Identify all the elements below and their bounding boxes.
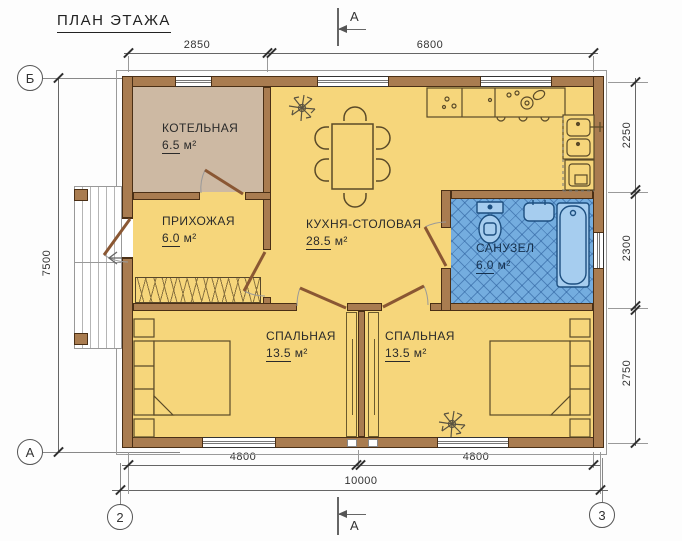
- chair: [344, 193, 366, 207]
- sink-basin: [567, 139, 590, 156]
- toilet-bowl: [479, 215, 501, 243]
- chair: [315, 127, 329, 149]
- room-area: 6.5 м²: [162, 137, 238, 154]
- chair: [315, 159, 329, 181]
- axis-marker-a: А: [17, 439, 43, 465]
- axis-marker-3: 3: [589, 502, 615, 528]
- nightstand: [570, 419, 590, 437]
- floor-plan-canvas: ПЛАН ЭТАЖА А А Б А 2 3 285: [0, 0, 682, 541]
- page-title: ПЛАН ЭТАЖА: [57, 12, 171, 33]
- door-leaf-hall: [244, 252, 265, 291]
- oven-door: [575, 175, 587, 184]
- room-name: СПАЛЬНАЯ: [385, 328, 455, 345]
- burner-icon: [521, 97, 533, 109]
- room-area: 6.0 м²: [162, 230, 235, 247]
- plant-icon: [439, 411, 465, 437]
- furniture-layer: [0, 0, 682, 541]
- chair: [376, 127, 390, 149]
- nightstand: [134, 319, 154, 337]
- stove: [565, 160, 594, 190]
- nightstand: [570, 319, 590, 337]
- room-name: САНУЗЕЛ: [476, 240, 534, 257]
- bed: [154, 341, 230, 415]
- room-label-hall: ПРИХОЖАЯ 6.0 м²: [162, 213, 235, 248]
- chair: [344, 107, 366, 121]
- chair: [376, 159, 390, 181]
- nightstand: [134, 419, 154, 437]
- room-area: 13.5 м²: [385, 345, 455, 362]
- sink-basin: [567, 119, 590, 136]
- section-arrow-icon: [338, 510, 347, 518]
- door-leaf-boiler: [205, 170, 243, 194]
- door-leaf-bedroom-2: [383, 286, 424, 307]
- dish-icon: [532, 89, 546, 102]
- room-label-bedroom-2: СПАЛЬНАЯ 13.5 м²: [385, 328, 455, 363]
- bed-2: [490, 319, 590, 437]
- entrance-arrow-icon: [109, 252, 122, 264]
- kitchen-sink: [563, 115, 603, 159]
- section-arrow-icon: [338, 25, 347, 33]
- room-label-boiler: КОТЕЛЬНАЯ 6.5 м²: [162, 120, 238, 155]
- bathroom-sink: [524, 203, 554, 221]
- bed-1: [134, 319, 230, 437]
- room-area: 13.5 м²: [266, 345, 336, 362]
- section-label-bottom: А: [350, 518, 359, 533]
- dining-table: [332, 124, 373, 189]
- door-leaf-bedroom-1: [300, 288, 346, 308]
- room-name: СПАЛЬНАЯ: [266, 328, 336, 345]
- room-area: 28.5 м²: [306, 233, 421, 250]
- axis-marker-2: 2: [107, 504, 133, 530]
- section-label-top: А: [350, 9, 359, 24]
- room-name: КОТЕЛЬНАЯ: [162, 120, 238, 137]
- plant-icon: [289, 95, 315, 121]
- room-label-kitchen: КУХНЯ-СТОЛОВАЯ 28.5 м²: [306, 216, 421, 251]
- headboard-shelf: [134, 341, 154, 415]
- room-label-bathroom: САНУЗЕЛ 6.0 м²: [476, 240, 534, 275]
- axis-marker-b: Б: [17, 65, 43, 91]
- kitchen-counter: [427, 88, 565, 121]
- dining-table-set: [315, 107, 390, 207]
- headboard-shelf: [570, 341, 590, 415]
- room-name: ПРИХОЖАЯ: [162, 213, 235, 230]
- door-leaf-bathroom: [425, 227, 446, 266]
- room-area: 6.0 м²: [476, 257, 534, 274]
- room-label-bedroom-1: СПАЛЬНАЯ 13.5 м²: [266, 328, 336, 363]
- door-leaf-entrance: [104, 219, 130, 255]
- bed: [490, 341, 570, 415]
- room-name: КУХНЯ-СТОЛОВАЯ: [306, 216, 421, 233]
